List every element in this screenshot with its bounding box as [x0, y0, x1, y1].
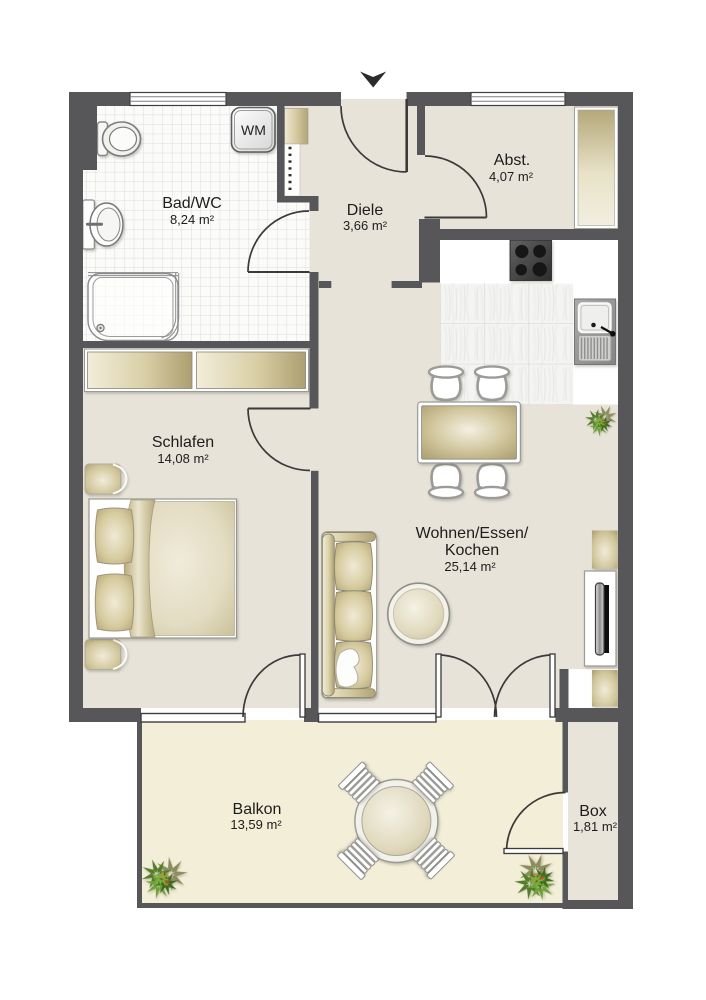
svg-text:1,81 m²: 1,81 m² [573, 819, 618, 834]
svg-text:Balkon: Balkon [233, 801, 282, 818]
svg-text:Abst.: Abst. [494, 152, 530, 169]
svg-text:Diele: Diele [347, 202, 384, 219]
svg-text:14,08 m²: 14,08 m² [157, 451, 209, 466]
svg-text:Wohnen/Essen/: Wohnen/Essen/ [416, 525, 529, 542]
svg-text:4,07 m²: 4,07 m² [489, 169, 534, 184]
svg-text:3,66 m²: 3,66 m² [343, 218, 388, 233]
svg-text:Kochen: Kochen [445, 542, 499, 559]
svg-text:Schlafen: Schlafen [152, 434, 214, 451]
svg-text:8,24 m²: 8,24 m² [170, 212, 215, 227]
svg-text:25,14 m²: 25,14 m² [444, 559, 496, 574]
svg-text:WM: WM [241, 122, 266, 138]
svg-text:Bad/WC: Bad/WC [162, 195, 222, 212]
svg-text:Box: Box [579, 803, 607, 820]
svg-text:13,59 m²: 13,59 m² [230, 817, 282, 832]
